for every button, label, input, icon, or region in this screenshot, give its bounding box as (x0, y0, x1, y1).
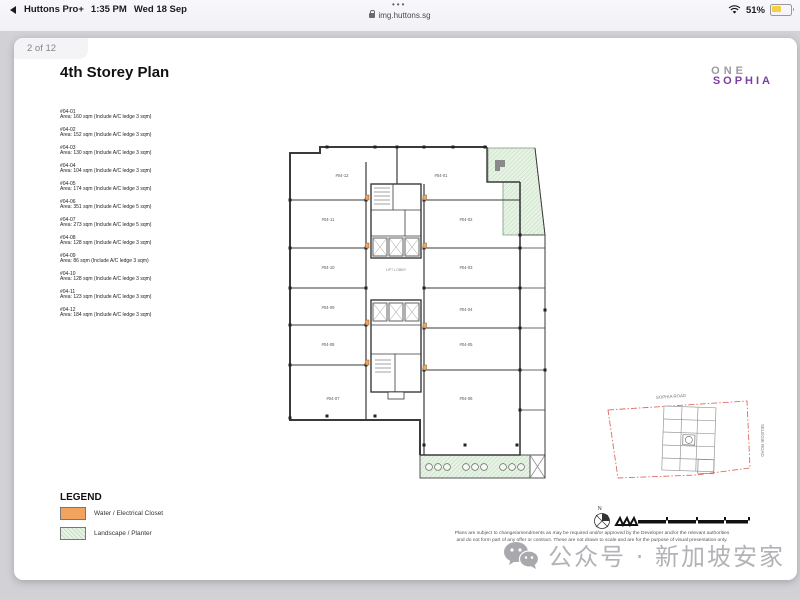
floor-plan: LIFT LOBBY #04-12 #04-01 (283, 140, 553, 485)
plan-unit-label: #04-03 (459, 265, 473, 270)
north-scale: N (592, 503, 754, 533)
battery-icon (770, 4, 792, 16)
battery-percent: 51% (746, 5, 765, 16)
logo-line-sophia: SOPHIA (711, 76, 773, 86)
plan-unit-label: #04-08 (321, 342, 335, 347)
plan-unit-label: #04-07 (326, 396, 340, 401)
north-label: N (598, 506, 602, 512)
plan-unit-label: #04-04 (459, 307, 473, 312)
list-item: #04-02Area: 152 sqm (Include A/C ledge 3… (60, 128, 260, 139)
list-item: #04-05Area: 174 sqm (Include A/C ledge 3… (60, 182, 260, 193)
list-item: #04-03Area: 130 sqm (Include A/C ledge 3… (60, 146, 260, 157)
plan-unit-label: #04-11 (322, 217, 335, 222)
plan-unit-label: #04-01 (434, 173, 448, 178)
watermark: 公众号 · 新加坡安家 (503, 537, 785, 572)
plan-unit-label: #04-05 (459, 342, 473, 347)
north-arrow-icon (595, 514, 610, 529)
plan-unit-label: #04-09 (321, 305, 335, 310)
plan-unit-label: #04-02 (459, 217, 473, 222)
plan-unit-label: #04-06 (459, 396, 473, 401)
legend: LEGEND Water / Electrical Closet Landsca… (60, 492, 163, 547)
page-indicator: 2 of 12 (14, 38, 88, 59)
lock-icon (369, 13, 375, 18)
list-item: #04-08Area: 128 sqm (Include A/C ledge 3… (60, 236, 260, 247)
list-item: #04-12Area: 184 sqm (Include A/C ledge 3… (60, 308, 260, 319)
url-text: img.huttons.sg (378, 11, 430, 20)
list-item: #04-10Area: 128 sqm (Include A/C ledge 3… (60, 272, 260, 283)
road-label-right: SELEGIE ROAD (760, 424, 765, 457)
document-page: 2 of 12 4th Storey Plan ONE SOPHIA #04-0… (14, 38, 797, 580)
core-label: LIFT LOBBY (386, 268, 407, 272)
site-key-plan: SOPHIA ROAD SELEGIE ROAD (598, 390, 768, 488)
plan-unit-label: #04-12 (335, 173, 349, 178)
legend-title: LEGEND (60, 492, 163, 503)
core-lower (371, 300, 421, 399)
screen: Huttons Pro+ 1:35 PM Wed 18 Sep ••• img.… (0, 0, 800, 599)
tab-dots: ••• (392, 0, 406, 9)
road-label-top: SOPHIA ROAD (656, 393, 687, 400)
wechat-icon (503, 540, 539, 570)
one-sophia-logo: ONE SOPHIA (711, 66, 773, 86)
scale-bar-icon (616, 517, 750, 525)
wifi-icon (728, 5, 741, 15)
list-item: #04-06Area: 351 sqm (Include A/C ledge 5… (60, 200, 260, 211)
legend-item: Landscape / Planter (60, 527, 163, 540)
page-title: 4th Storey Plan (60, 64, 169, 81)
list-item: #04-09Area: 86 sqm (Include A/C ledge 3 … (60, 254, 260, 265)
water-electrical-swatch (60, 507, 86, 520)
plan-unit-label: #04-10 (321, 265, 335, 270)
list-item: #04-04Area: 104 sqm (Include A/C ledge 3… (60, 164, 260, 175)
unit-area-list: #04-01Area: 160 sqm (Include A/C ledge 3… (60, 110, 260, 326)
list-item: #04-01Area: 160 sqm (Include A/C ledge 3… (60, 110, 260, 121)
watermark-text: 公众号 · 新加坡安家 (548, 537, 785, 572)
page-indicator-label: 2 of 12 (27, 43, 56, 54)
landscape-planter-swatch (60, 527, 86, 540)
core-upper (371, 184, 421, 258)
legend-item: Water / Electrical Closet (60, 507, 163, 520)
url-bar[interactable]: img.huttons.sg (0, 11, 800, 20)
status-bar: Huttons Pro+ 1:35 PM Wed 18 Sep ••• img.… (0, 0, 800, 31)
list-item: #04-07Area: 273 sqm (Include A/C ledge 5… (60, 218, 260, 229)
list-item: #04-11Area: 123 sqm (Include A/C ledge 3… (60, 290, 260, 301)
